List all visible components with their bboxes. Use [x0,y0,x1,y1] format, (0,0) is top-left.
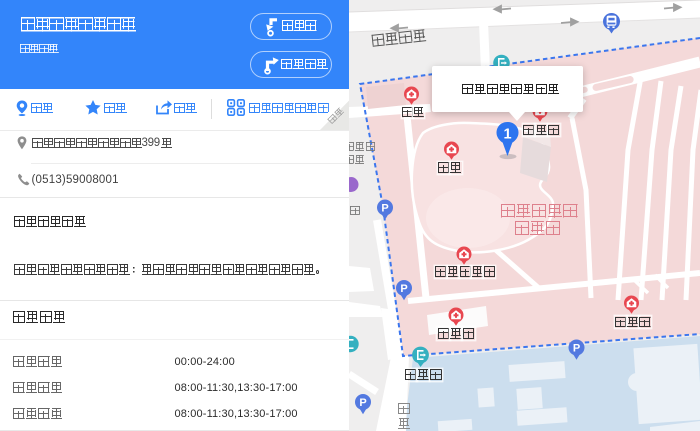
svg-text:1: 1 [503,127,511,143]
svg-text:P: P [381,203,388,215]
